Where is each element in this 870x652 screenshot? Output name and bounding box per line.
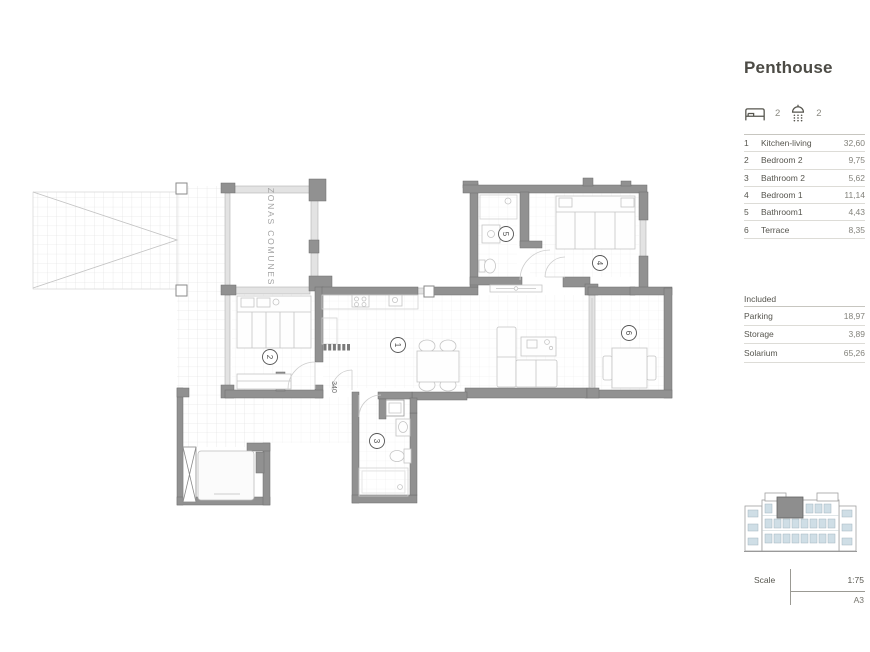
shower-icon <box>789 104 807 122</box>
table-row: Solarium 65,26 <box>744 344 865 363</box>
scale-value: 1:75 <box>847 575 864 585</box>
svg-text:2: 2 <box>265 355 274 360</box>
included-heading: Included <box>744 294 776 304</box>
plan-sheet: 1 2 3 4 5 6 ZONAS COMUN <box>0 0 870 652</box>
scale-divider-vertical <box>790 569 791 605</box>
wardrobe-bedroom2 <box>237 374 291 389</box>
highlighted-unit <box>777 497 803 518</box>
bed-bedroom1 <box>556 196 635 249</box>
common-zone-label: ZONAS COMUNES <box>266 188 276 287</box>
svg-text:3: 3 <box>372 439 381 444</box>
room-label-bedroom1: 4 <box>593 256 608 271</box>
table-row: 4 Bedroom 1 11,14 <box>744 186 865 203</box>
table-row: 1 Kitchen-living 32,60 <box>744 135 865 152</box>
room-label-bathroom2: 3 <box>370 434 385 449</box>
door-dimension-label: 340 <box>330 381 337 393</box>
table-row: Storage 3,89 <box>744 325 865 344</box>
table-row: 2 Bedroom 2 9,75 <box>744 152 865 169</box>
info-sidebar: Penthouse 2 2 1 Kitchen-living <box>744 56 865 652</box>
svg-text:5: 5 <box>501 232 510 237</box>
table-row: 6 Terrace 8,35 <box>744 221 865 238</box>
desk <box>521 337 556 356</box>
room-label-kitchen-living: 1 <box>391 338 406 353</box>
scale-label: Scale <box>754 575 775 585</box>
bed-icon <box>744 106 766 121</box>
unit-stats: 2 2 <box>744 103 822 123</box>
building-elevation <box>744 488 865 558</box>
room-label-bedroom2: 2 <box>263 350 278 365</box>
table-row: 3 Bathroom 2 5,62 <box>744 169 865 186</box>
sheet-size: A3 <box>854 595 864 605</box>
bathroom-count: 2 <box>816 108 821 119</box>
scale-divider-horizontal <box>790 591 865 592</box>
rooms-table: 1 Kitchen-living 32,60 2 Bedroom 2 9,75 … <box>744 134 865 239</box>
room-label-bathroom1: 5 <box>499 227 514 242</box>
table-row: 5 Bathroom1 4,43 <box>744 204 865 221</box>
room-label-terrace: 6 <box>622 326 637 341</box>
table-row: Parking 18,97 <box>744 307 865 326</box>
elevator <box>183 447 254 502</box>
included-table: Parking 18,97 Storage 3,89 Solarium 65,2… <box>744 306 865 363</box>
svg-text:1: 1 <box>393 343 402 348</box>
floor-plan: 1 2 3 4 5 6 ZONAS COMUN <box>0 0 720 652</box>
scale-block: Scale 1:75 A3 <box>744 564 865 608</box>
bed-bedroom2 <box>237 296 311 348</box>
page-title: Penthouse <box>744 58 833 78</box>
svg-text:6: 6 <box>624 331 633 336</box>
bedroom-count: 2 <box>775 108 780 119</box>
svg-text:4: 4 <box>595 261 604 266</box>
